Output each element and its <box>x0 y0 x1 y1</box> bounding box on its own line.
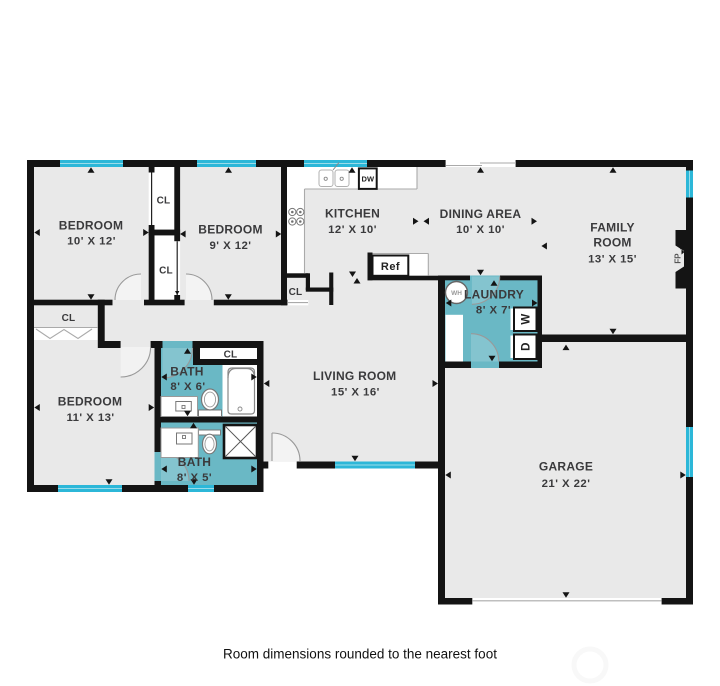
svg-text:BATH: BATH <box>178 455 211 469</box>
svg-text:8' X 5': 8' X 5' <box>177 472 212 484</box>
svg-text:8' X 6': 8' X 6' <box>170 381 205 393</box>
svg-text:11' X 13': 11' X 13' <box>66 412 114 424</box>
svg-text:CL: CL <box>224 350 238 361</box>
svg-text:13' X 15': 13' X 15' <box>588 254 637 266</box>
svg-text:FP: FP <box>674 253 683 264</box>
svg-text:CL: CL <box>157 196 171 207</box>
svg-text:DW: DW <box>362 174 375 183</box>
svg-text:CL: CL <box>159 266 173 277</box>
svg-text:21' X 22': 21' X 22' <box>542 478 591 490</box>
svg-text:D: D <box>521 343 533 351</box>
svg-text:LIVING ROOM: LIVING ROOM <box>313 369 396 383</box>
svg-text:DINING AREA: DINING AREA <box>440 207 522 221</box>
svg-text:8' X 7': 8' X 7' <box>476 305 511 317</box>
svg-text:LAUNDRY: LAUNDRY <box>464 288 524 302</box>
svg-text:BATH: BATH <box>170 365 203 379</box>
svg-text:BEDROOM: BEDROOM <box>198 223 262 237</box>
svg-text:15' X 16': 15' X 16' <box>331 386 380 398</box>
svg-text:BEDROOM: BEDROOM <box>58 394 122 408</box>
svg-text:FAMILY: FAMILY <box>590 221 634 235</box>
svg-text:Room dimensions rounded to the: Room dimensions rounded to the nearest f… <box>223 647 497 662</box>
svg-text:Ref: Ref <box>381 261 400 273</box>
svg-text:BEDROOM: BEDROOM <box>59 219 123 233</box>
svg-text:GARAGE: GARAGE <box>539 460 593 474</box>
svg-text:CL: CL <box>289 287 303 298</box>
svg-text:10' X 12': 10' X 12' <box>67 236 116 248</box>
svg-text:CL: CL <box>62 313 76 324</box>
svg-text:W: W <box>521 314 533 325</box>
svg-text:KITCHEN: KITCHEN <box>325 207 380 221</box>
svg-text:ROOM: ROOM <box>593 236 631 250</box>
svg-text:10' X 10': 10' X 10' <box>456 224 505 236</box>
svg-text:9' X 12': 9' X 12' <box>210 240 252 252</box>
svg-text:12' X 10': 12' X 10' <box>328 224 377 236</box>
svg-text:WH: WH <box>451 290 462 297</box>
